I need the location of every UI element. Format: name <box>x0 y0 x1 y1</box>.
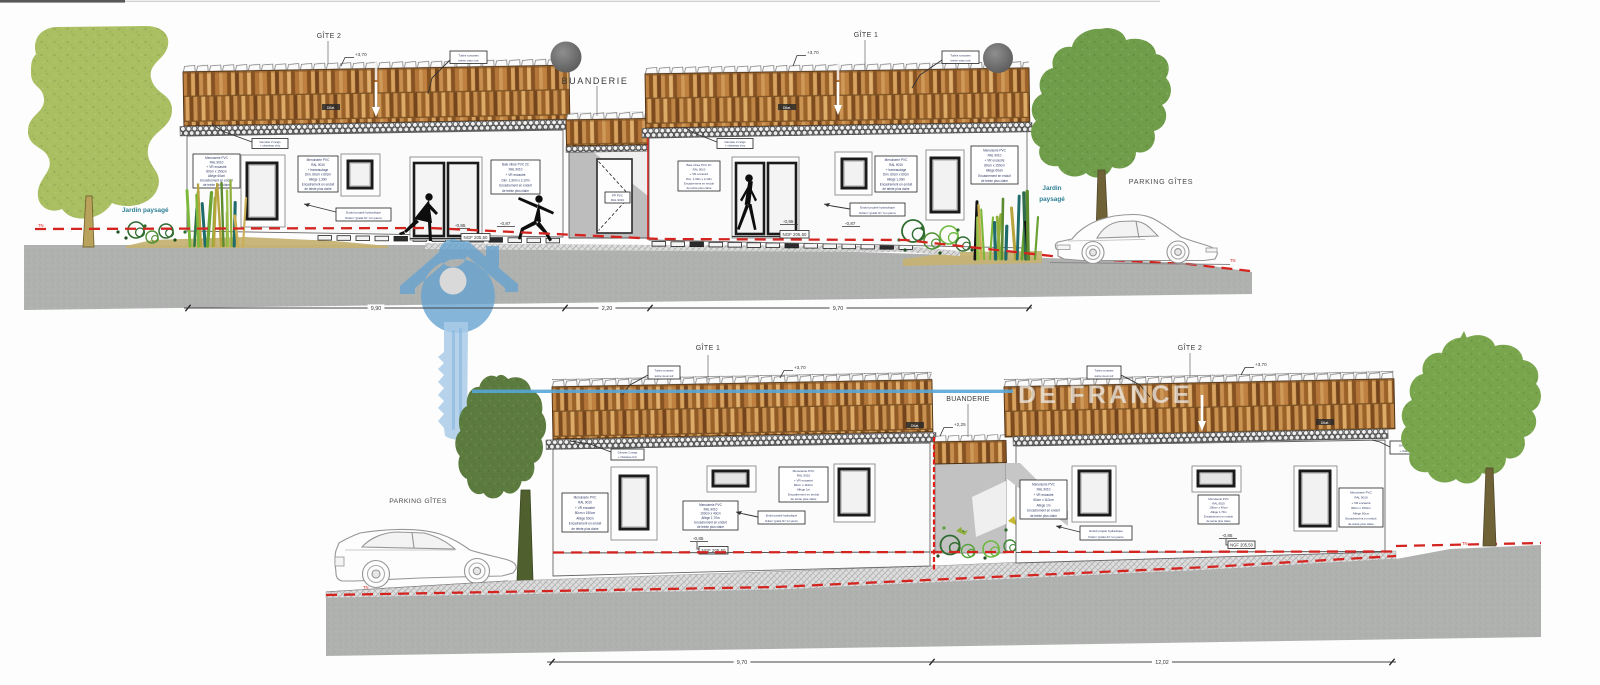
svg-text:Tuiles romanesteinte vieux toi: Tuiles romanesteinte vieux toit <box>1094 369 1114 378</box>
svg-text:GÎTE 2: GÎTE 2 <box>317 31 342 40</box>
svg-text:BUANDERIE: BUANDERIE <box>946 396 990 403</box>
svg-text:2,20: 2,20 <box>602 306 613 312</box>
svg-text:12,02: 12,02 <box>1155 660 1169 666</box>
svg-text:-0,85: -0,85 <box>455 223 466 228</box>
svg-text:+2,25: +2,25 <box>954 422 966 427</box>
svg-text:Enduit projeté hydrauliquefini: Enduit projeté hydrauliquefinition "grat… <box>345 211 382 220</box>
svg-text:-0,85: -0,85 <box>783 219 794 224</box>
svg-text:NGF 205,50: NGF 205,50 <box>464 235 488 240</box>
svg-text:PP PVCRAL 9010: PP PVCRAL 9010 <box>611 194 625 202</box>
svg-text:9,70: 9,70 <box>833 306 844 312</box>
svg-text:DE FRANCE: DE FRANCE <box>1018 381 1193 409</box>
svg-text:TN: TN <box>1230 258 1236 263</box>
svg-text:+3,70: +3,70 <box>1255 362 1267 367</box>
svg-text:BUANDERIE: BUANDERIE <box>562 76 629 86</box>
svg-text:Tuiles romanesteinte vieux toi: Tuiles romanesteinte vieux toit <box>458 53 479 62</box>
svg-text:TN: TN <box>363 585 369 590</box>
svg-text:PARKING GÎTES: PARKING GÎTES <box>1129 177 1193 186</box>
svg-text:Enduit projeté hydrauliquefini: Enduit projeté hydrauliquefinition "grat… <box>859 206 896 215</box>
svg-text:TN: TN <box>38 223 44 228</box>
svg-text:Génoise 2 rangs+ chanteau zinc: Génoise 2 rangs+ chanteau zinc <box>724 140 746 148</box>
svg-text:GÎTE 2: GÎTE 2 <box>1178 343 1203 352</box>
svg-text:NGF 205,50: NGF 205,50 <box>783 232 807 237</box>
svg-text:GÎTE 1: GÎTE 1 <box>696 343 721 352</box>
svg-text:Tuiles romanesteinte vieux toi: Tuiles romanesteinte vieux toit <box>950 53 971 62</box>
svg-text:Dilat.: Dilat. <box>783 106 791 110</box>
svg-text:Tuiles romanesteinte vieux toi: Tuiles romanesteinte vieux toit <box>654 369 674 378</box>
svg-text:Dilat.: Dilat. <box>911 424 919 428</box>
svg-text:9,90: 9,90 <box>371 306 382 312</box>
svg-text:+3,70: +3,70 <box>807 50 819 55</box>
svg-text:Jardin: Jardin <box>1042 185 1061 192</box>
svg-text:9,70: 9,70 <box>737 660 748 666</box>
svg-text:+3,70: +3,70 <box>794 365 806 370</box>
svg-text:Génoise 2 rangs+ chanteau zinc: Génoise 2 rangs+ chanteau zinc <box>259 140 281 148</box>
svg-text:Dilat.: Dilat. <box>1321 421 1329 425</box>
svg-text:paysagé: paysagé <box>1039 196 1065 203</box>
svg-text:-0,87: -0,87 <box>845 221 856 226</box>
svg-text:PARKING GÎTES: PARKING GÎTES <box>389 496 447 505</box>
svg-text:GÎTE 1: GÎTE 1 <box>854 30 879 39</box>
svg-text:-0,85: -0,85 <box>1222 533 1233 538</box>
svg-text:-0,87: -0,87 <box>500 221 511 226</box>
svg-text:Enduit projeté hydrauliquefini: Enduit projeté hydrauliquefinition "grat… <box>1088 529 1124 539</box>
svg-text:+3,70: +3,70 <box>355 52 367 57</box>
svg-text:-0,85: -0,85 <box>693 536 704 541</box>
svg-text:Jardin paysagé: Jardin paysagé <box>122 207 169 214</box>
svg-text:Dilat.: Dilat. <box>327 106 335 110</box>
svg-text:NGF 205,50: NGF 205,50 <box>1230 543 1253 548</box>
svg-text:TN: TN <box>1462 541 1468 546</box>
